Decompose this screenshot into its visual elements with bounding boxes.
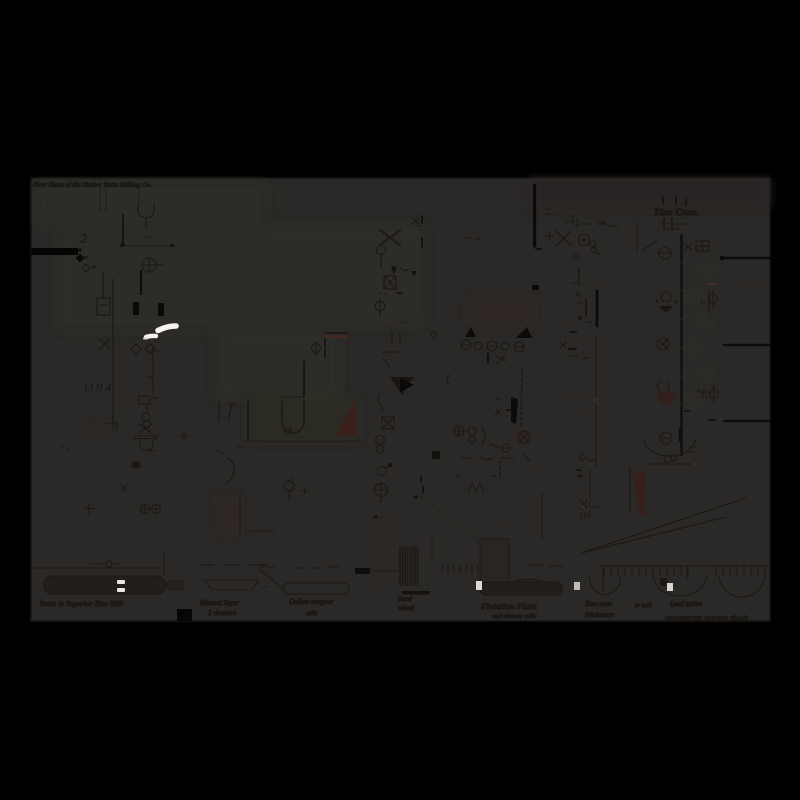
svg-text:Sand: Sand xyxy=(398,595,413,603)
svg-text:Lead tables: Lead tables xyxy=(669,600,703,608)
svg-text:to mill: to mill xyxy=(635,602,652,609)
svg-text:concentrate storage sheds: concentrate storage sheds xyxy=(665,614,748,622)
svg-text:Flotation Plant: Flotation Plant xyxy=(480,601,537,611)
svg-text:Callow rougher: Callow rougher xyxy=(289,598,334,606)
svg-text:i3 0 4: i3 0 4 xyxy=(84,380,111,394)
svg-text:Butte & Superior Zinc Mill: Butte & Superior Zinc Mill xyxy=(40,600,123,608)
svg-text:and cleaner cells: and cleaner cells xyxy=(492,613,537,620)
svg-text:wheel: wheel xyxy=(398,604,414,612)
svg-text:Zinc conc: Zinc conc xyxy=(585,600,613,608)
svg-text:cells: cells xyxy=(306,610,318,617)
svg-text:Flow Sheet of the Timber Butte: Flow Sheet of the Timber Butte Milling C… xyxy=(32,182,152,189)
svg-text:2 cleaners: 2 cleaners xyxy=(208,610,236,617)
svg-text:thickeners: thickeners xyxy=(585,611,614,619)
svg-text:Mineral Separ: Mineral Separ xyxy=(199,600,240,607)
svg-text:Zinc Conc.: Zinc Conc. xyxy=(653,208,699,218)
